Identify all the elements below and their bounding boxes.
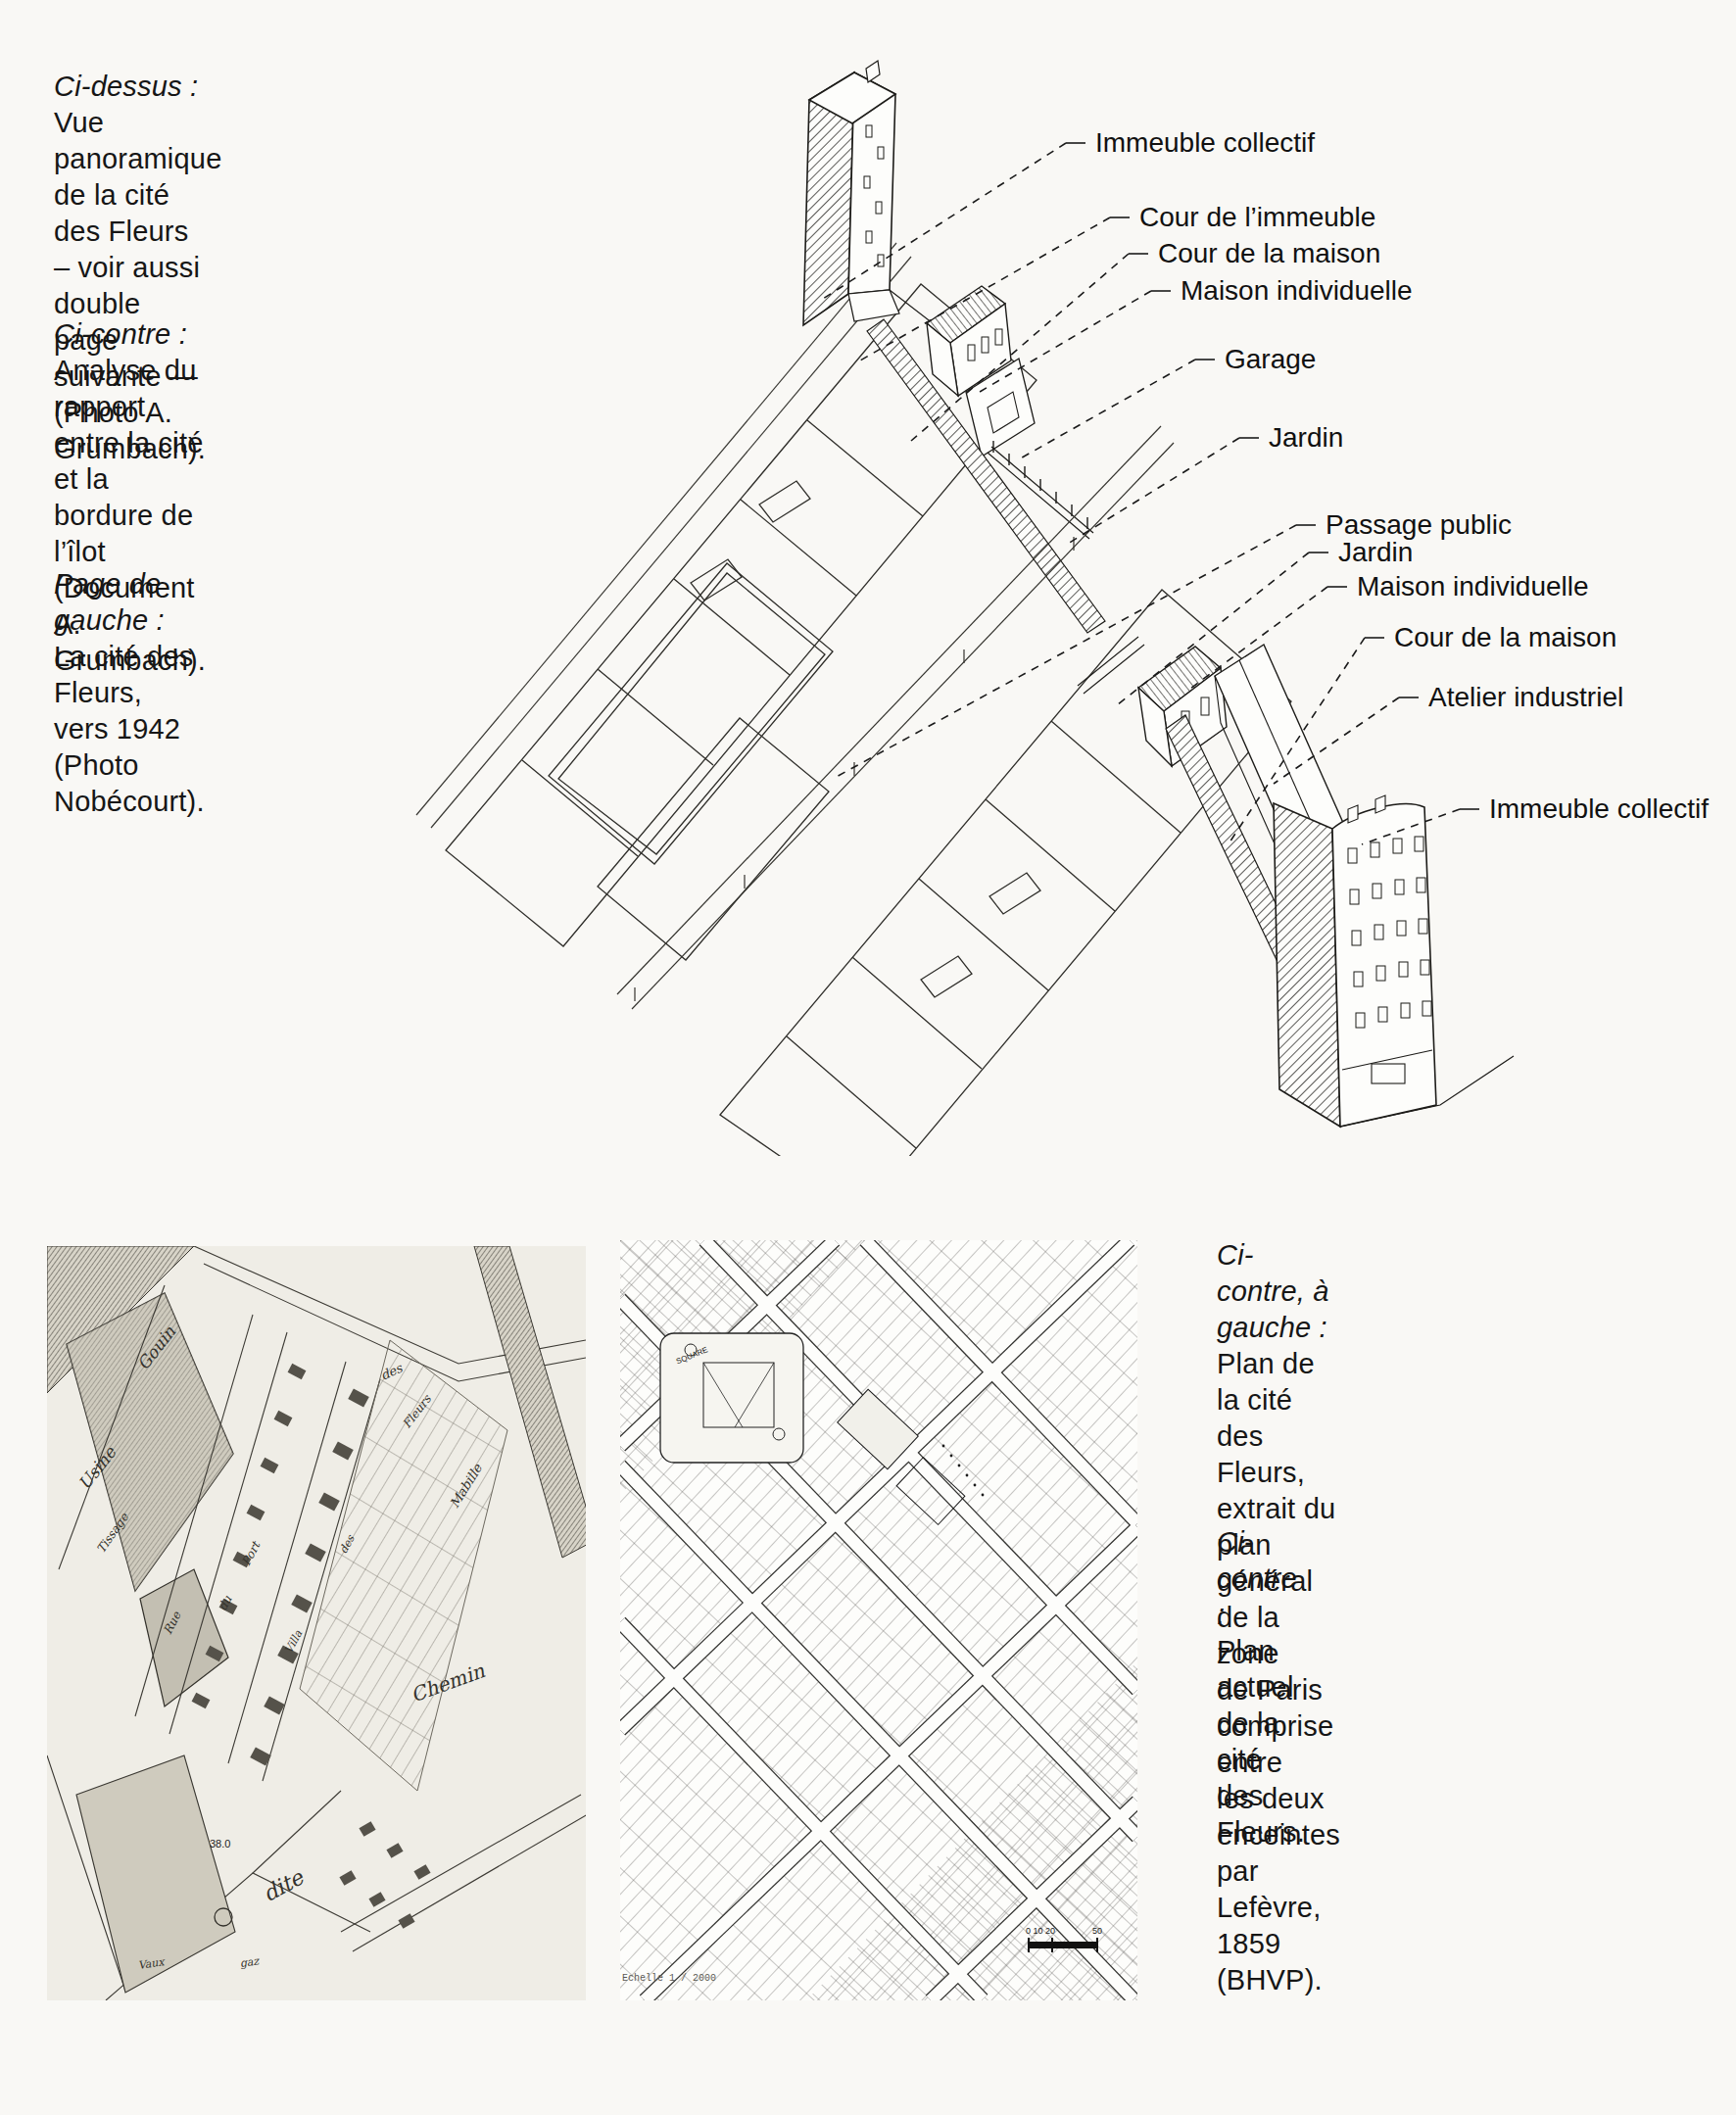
map-label: 50	[1092, 1926, 1102, 1936]
caption-line: de la cité des Fleurs	[54, 177, 221, 250]
book-page: { "page": { "paper": "#f9f8f5", "ink": "…	[0, 0, 1736, 2115]
caption-heading: Ci-dessus :	[54, 69, 221, 105]
leader-dashed-line	[1017, 360, 1195, 460]
leader-dashed-line	[1068, 438, 1239, 544]
leader-dashed-line	[833, 525, 1296, 779]
caption-line: Analyse du rapport	[54, 353, 206, 425]
map-actual-plan: SQUAREEchelle 1 / 20000 10 2050	[620, 1240, 1137, 2000]
caption-line: – voir aussi double	[54, 250, 221, 322]
caption-line: Plan actuel de la cité	[1217, 1633, 1305, 1778]
axonometric-drawing	[411, 20, 1736, 1156]
caption-heading: Ci-contre :	[54, 316, 206, 353]
caption-line: La cité des Fleurs,	[54, 639, 205, 711]
map-label: Echelle 1 / 2000	[622, 1973, 716, 1984]
caption-line: Lefèvre, 1859 (BHVP).	[1217, 1890, 1340, 1998]
map-1859-drawing	[47, 1246, 586, 2000]
caption-line: Vue panoramique	[54, 105, 221, 177]
map-label: 38.0	[210, 1838, 230, 1850]
caption-line: des Fleurs, extrait du	[1217, 1418, 1340, 1527]
map-label: gaz	[239, 1954, 260, 1970]
caption-line: vers 1942	[54, 711, 205, 747]
caption-heading: Page de gauche :	[54, 566, 205, 639]
caption-line: et la bordure de l’îlot	[54, 461, 206, 570]
axonometric-diagram	[411, 20, 1736, 1156]
caption-line: Plan de la cité	[1217, 1346, 1340, 1418]
caption-line: entre la cité	[54, 425, 206, 461]
map-label: 0 10 20	[1026, 1926, 1055, 1936]
caption-paragraph: Ci-contre :Plan actuel de la citédes Fle…	[1217, 1524, 1305, 1851]
caption-heading: Ci-contre, à gauche :	[1217, 1237, 1340, 1346]
caption-line: (Photo Nobécourt).	[54, 747, 205, 820]
map-1859-lefevre: GouinUsineTissagePortduRuedesFleursVilla…	[47, 1246, 586, 2000]
caption-heading: Ci-contre :	[1217, 1524, 1305, 1633]
caption-line: des Fleurs.	[1217, 1778, 1305, 1851]
caption-paragraph: Page de gauche :La cité des Fleurs,vers …	[54, 566, 205, 820]
